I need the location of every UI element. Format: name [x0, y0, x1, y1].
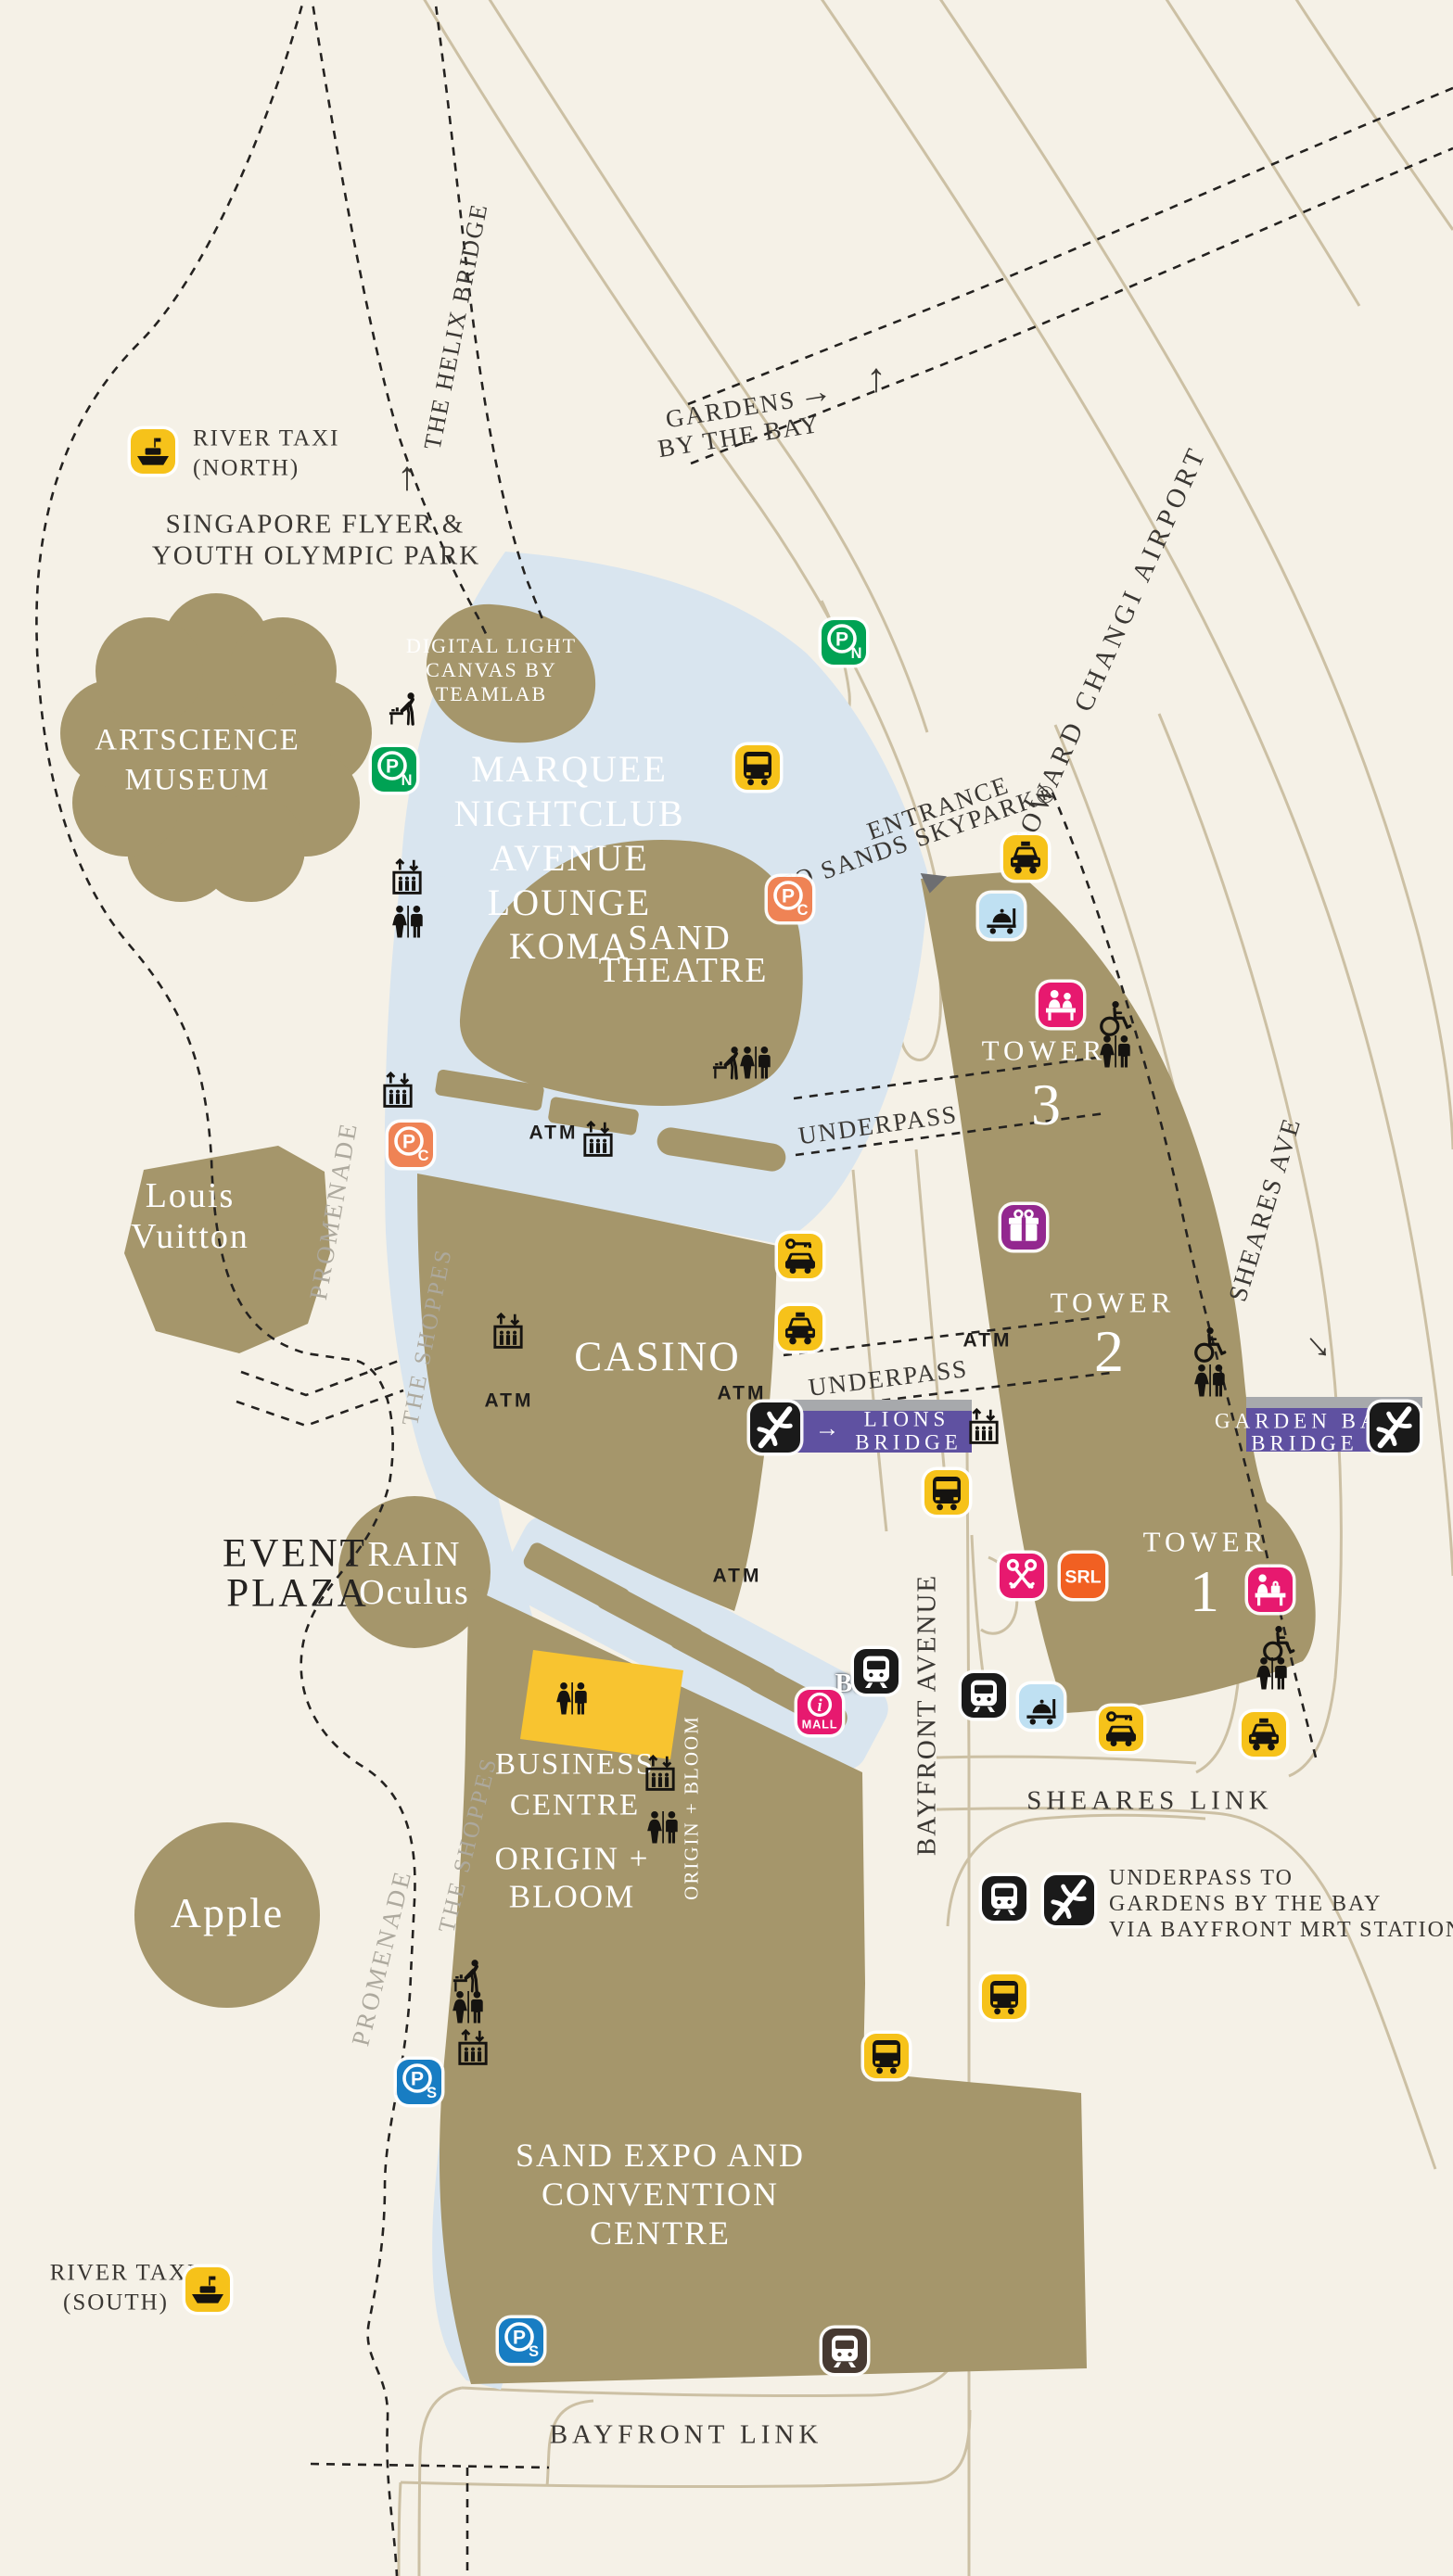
- gardens-logo-icon-gardenbay: [1370, 1402, 1420, 1453]
- atm-label-4: ATM: [963, 1331, 1013, 1351]
- bus-stop-icon-bayfront: [864, 2034, 909, 2078]
- casino-label: CASINO: [574, 1337, 741, 1378]
- event-plaza-label-2: PLAZA: [226, 1574, 369, 1614]
- atm-label-5: ATM: [713, 1567, 762, 1586]
- atm-label-1: ATM: [529, 1123, 579, 1143]
- sand-theatre-label-2: THEATRE: [599, 953, 769, 988]
- the-shoppes-label-2: THE SHOPPES: [435, 1754, 501, 1935]
- svg-text:MALL: MALL: [802, 1718, 838, 1732]
- tower2-number: 2: [1094, 1322, 1126, 1381]
- origin-bloom-label-2: BLOOM: [509, 1881, 635, 1913]
- gardens-logo-icon-underpass: [1044, 1875, 1094, 1925]
- river-taxi-south-label-2: (SOUTH): [63, 2291, 169, 2315]
- marquee-label: MARQUEE: [471, 751, 668, 788]
- rain-oculus-label-1: RAIN: [368, 1537, 462, 1572]
- taxi-stand-icon-casino: [778, 1306, 822, 1351]
- toilets-icon-7: [642, 1807, 684, 1849]
- map-stage: RIVER TAXI(NORTH)↑SINGAPORE FLYER &YOUTH…: [0, 0, 1453, 2576]
- wheelchair-icon-2: [1186, 1324, 1229, 1366]
- elevator-icon-4: [487, 1309, 529, 1351]
- artscience-label-1: ARTSCIENCE: [95, 726, 300, 756]
- tower1-number: 1: [1190, 1562, 1221, 1621]
- parking-south-icon-walkway: PS: [397, 2060, 441, 2104]
- lions-bridge-arrow: →: [815, 1416, 842, 1441]
- underpass-gardens-label-2: GARDENS BY THE BAY: [1109, 1893, 1382, 1915]
- parking-south-icon-expo: PS: [499, 2318, 543, 2363]
- mrt-station-icon-b2m: [854, 1649, 899, 1694]
- parking-north-icon-shoppes: PN: [372, 747, 416, 792]
- parking-casino-icon-road: PC: [768, 877, 812, 921]
- bus-stop-icon-north: [735, 745, 780, 790]
- digital-canvas-label-1: DIGITAL LIGHT: [406, 636, 577, 656]
- sheares-link-label: SHEARES LINK: [1026, 1788, 1272, 1815]
- digital-canvas-label-3: TEAMLAB: [436, 684, 547, 704]
- svg-text:SRL: SRL: [1064, 1567, 1101, 1588]
- sheares-ave-label: SHEARES AVE: [1226, 1114, 1306, 1304]
- flyer-direction-arrow: ↑: [397, 456, 419, 497]
- svg-text:P: P: [411, 2069, 424, 2090]
- river-taxi-south-icon: [185, 2267, 230, 2312]
- bell-desk-icon-tower1: [1019, 1684, 1064, 1729]
- gift-shop-icon: [1001, 1205, 1046, 1250]
- svg-text:P: P: [782, 886, 795, 907]
- the-shoppes-label-1: THE SHOPPES: [399, 1246, 456, 1428]
- nightclub-label: NIGHTCLUB: [453, 795, 684, 832]
- helix-bridge-label: THE HELIX BRIDGE: [420, 201, 491, 451]
- tower3-number: 3: [1031, 1075, 1063, 1135]
- hotel-reception-icon-tower1: [1248, 1567, 1293, 1612]
- event-plaza-label-1: EVENT: [223, 1534, 367, 1574]
- underpass-gardens-label-3: VIA BAYFRONT MRT STATION: [1109, 1919, 1453, 1941]
- river-taxi-north-label-1: RIVER TAXI: [193, 427, 340, 450]
- sand-expo-label-3: CENTRE: [590, 2216, 731, 2250]
- taxi-stand-icon-tower1: [1242, 1712, 1286, 1757]
- baby-change-icon-3: [447, 1955, 490, 1998]
- bell-desk-icon-tower3: [979, 894, 1024, 938]
- svg-text:P: P: [386, 756, 399, 778]
- elevator-icon-5: [962, 1404, 1005, 1447]
- map-overlay: RIVER TAXI(NORTH)↑SINGAPORE FLYER &YOUTH…: [0, 0, 1453, 2576]
- wheelchair-icon-3: [1255, 1622, 1297, 1665]
- tower2-label: TOWER: [1051, 1288, 1176, 1317]
- avenue-label: AVENUE: [490, 840, 648, 877]
- river-taxi-south-label-1: RIVER TAXI: [50, 2262, 198, 2285]
- tower3-label: TOWER: [982, 1036, 1107, 1065]
- digital-canvas-label-2: CANVAS BY: [426, 660, 557, 680]
- sheares-direction-arrow: ↓: [1296, 1324, 1338, 1367]
- singapore-flyer-label-2: YOUTH OLYMPIC PARK: [152, 543, 480, 570]
- gardens-direction-arrow: →: [796, 373, 835, 412]
- underpass-north-label: UNDERPASS: [797, 1102, 959, 1149]
- bayfront-link-label: BAYFRONT LINK: [550, 2422, 823, 2449]
- apple-label: Apple: [171, 1892, 284, 1935]
- underpass-gardens-label-1: UNDERPASS TO: [1109, 1867, 1294, 1889]
- srl-icon: SRL: [1061, 1554, 1105, 1598]
- sand-expo-label-1: SAND EXPO AND: [516, 2138, 805, 2172]
- business-centre-label-1: BUSINESS: [495, 1750, 655, 1781]
- parking-north-icon-road: PN: [822, 620, 866, 665]
- toilets-icon-1: [387, 901, 429, 944]
- baby-change-icon-1: [383, 688, 426, 730]
- louis-vuitton-label-2: Vuitton: [131, 1219, 249, 1254]
- origin-bloom-vertical-label: ORIGIN + BLOOM: [682, 1715, 702, 1900]
- singapore-flyer-label-1: SINGAPORE FLYER &: [166, 512, 465, 539]
- elevator-icon-6: [639, 1751, 682, 1794]
- svg-text:N: N: [401, 772, 413, 789]
- elevator-icon-7: [452, 2025, 494, 2068]
- mrt-station-icon-bayfront-link: [822, 2329, 867, 2373]
- promenade-label-2: PROMENADE: [348, 1867, 415, 2049]
- hotel-entrance-arrow: [914, 864, 951, 901]
- mrt-station-icon-underpass: [982, 1876, 1026, 1921]
- origin-bloom-label-1: ORIGIN +: [495, 1843, 650, 1875]
- lounge-label: LOUNGE: [488, 884, 651, 921]
- parking-casino-icon-shoppes: PC: [389, 1123, 433, 1167]
- svg-text:P: P: [402, 1132, 415, 1153]
- changi-direction-arrow: ↑: [866, 358, 888, 399]
- sand-expo-label-2: CONVENTION: [542, 2177, 779, 2211]
- bus-stop-icon-tower2: [924, 1470, 969, 1515]
- river-taxi-north-label-2: (NORTH): [193, 457, 300, 480]
- atm-label-2: ATM: [485, 1391, 534, 1411]
- baby-change-icon-2: [707, 1042, 749, 1085]
- tower1-label: TOWER: [1143, 1528, 1268, 1556]
- lions-bridge-label-1: LIONS: [864, 1409, 950, 1430]
- svg-text:S: S: [529, 2343, 539, 2360]
- svg-text:P: P: [835, 629, 848, 651]
- wheelchair-icon-1: [1091, 997, 1134, 1040]
- atm-label-3: ATM: [718, 1384, 767, 1403]
- elevator-icon-3: [577, 1117, 619, 1160]
- elevator-icon-1: [386, 855, 428, 897]
- svg-text:i: i: [817, 1696, 822, 1716]
- concierge-keys-icon: [1000, 1554, 1044, 1598]
- svg-text:C: C: [797, 902, 809, 919]
- mrt-station-icon-tower1: [962, 1673, 1006, 1718]
- svg-text:S: S: [427, 2085, 437, 2101]
- rain-oculus-label-2: Oculus: [359, 1575, 470, 1610]
- mall-info-icon: i MALL: [797, 1690, 842, 1734]
- limo-pickup-icon-casino: [778, 1234, 822, 1278]
- svg-text:P: P: [513, 2328, 526, 2349]
- taxi-stand-icon-skypark: [1003, 835, 1048, 880]
- garden-bay-bridge-label-2: BRIDGE: [1251, 1433, 1358, 1454]
- louis-vuitton-label-1: Louis: [146, 1178, 236, 1213]
- hotel-reception-icon-tower3: [1039, 983, 1083, 1027]
- limo-pickup-icon-tower1: [1099, 1707, 1143, 1751]
- underpass-south-label: UNDERPASS: [807, 1356, 969, 1401]
- bayfront-avenue-label: BAYFRONT AVENUE: [914, 1574, 941, 1856]
- promenade-label-1: PROMENADE: [306, 1120, 362, 1302]
- bus-stop-icon-sheares: [982, 1974, 1026, 2019]
- business-centre-label-2: CENTRE: [510, 1791, 640, 1821]
- svg-text:C: C: [418, 1148, 429, 1164]
- river-taxi-north-icon: [131, 429, 175, 474]
- svg-text:N: N: [851, 645, 862, 662]
- toilets-icon-6: [551, 1678, 593, 1720]
- lions-bridge-label-2: BRIDGE: [855, 1432, 962, 1453]
- artscience-label-2: MUSEUM: [125, 766, 271, 796]
- gardens-logo-icon-lions: [750, 1402, 800, 1453]
- elevator-icon-2: [376, 1068, 419, 1110]
